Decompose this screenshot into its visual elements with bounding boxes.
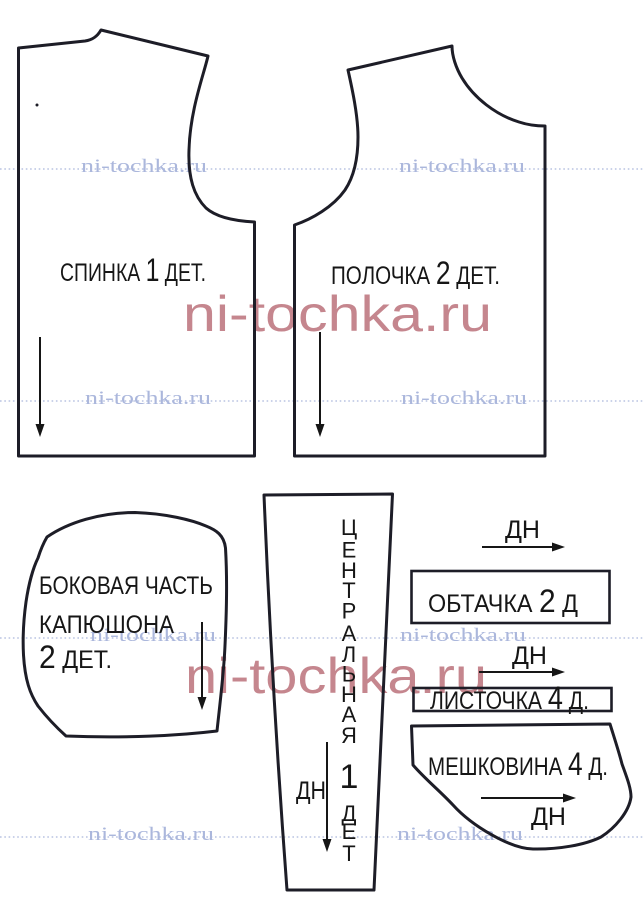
svg-text:Я: Я: [341, 723, 357, 748]
svg-text:БОКОВАЯ ЧАСТЬ: БОКОВАЯ ЧАСТЬ: [39, 572, 213, 600]
svg-text:КАПЮШОНА: КАПЮШОНА: [39, 611, 174, 639]
svg-text:ni-tochka.ru: ni-tochka.ru: [400, 625, 527, 646]
svg-text:Т: Т: [342, 841, 355, 866]
svg-text:ПОЛОЧКА 2 ДЕТ.: ПОЛОЧКА 2 ДЕТ.: [331, 255, 500, 291]
svg-text:ni-tochka.ru: ni-tochka.ru: [88, 824, 215, 845]
svg-text:ni-tochka.ru: ni-tochka.ru: [85, 388, 212, 409]
svg-text:ni-tochka.ru: ni-tochka.ru: [401, 388, 528, 409]
svg-text:ni-tochka.ru: ni-tochka.ru: [399, 156, 526, 177]
svg-text:ni-tochka.ru: ni-tochka.ru: [183, 286, 492, 342]
svg-text:ДН: ДН: [531, 803, 566, 831]
svg-text:Р: Р: [342, 599, 357, 624]
svg-text:Ц: Ц: [341, 515, 357, 540]
svg-text:ОБТАЧКА 2 Д: ОБТАЧКА 2 Д: [428, 583, 578, 619]
svg-text:ДН: ДН: [512, 642, 547, 670]
svg-text:ДН: ДН: [505, 516, 540, 544]
svg-text:ДН: ДН: [296, 777, 326, 805]
svg-text:1: 1: [340, 758, 359, 796]
svg-text:СПИНКА 1 ДЕТ.: СПИНКА 1 ДЕТ.: [60, 252, 206, 288]
svg-text:МЕШКОВИНА 4 Д.: МЕШКОВИНА 4 Д.: [428, 746, 608, 782]
